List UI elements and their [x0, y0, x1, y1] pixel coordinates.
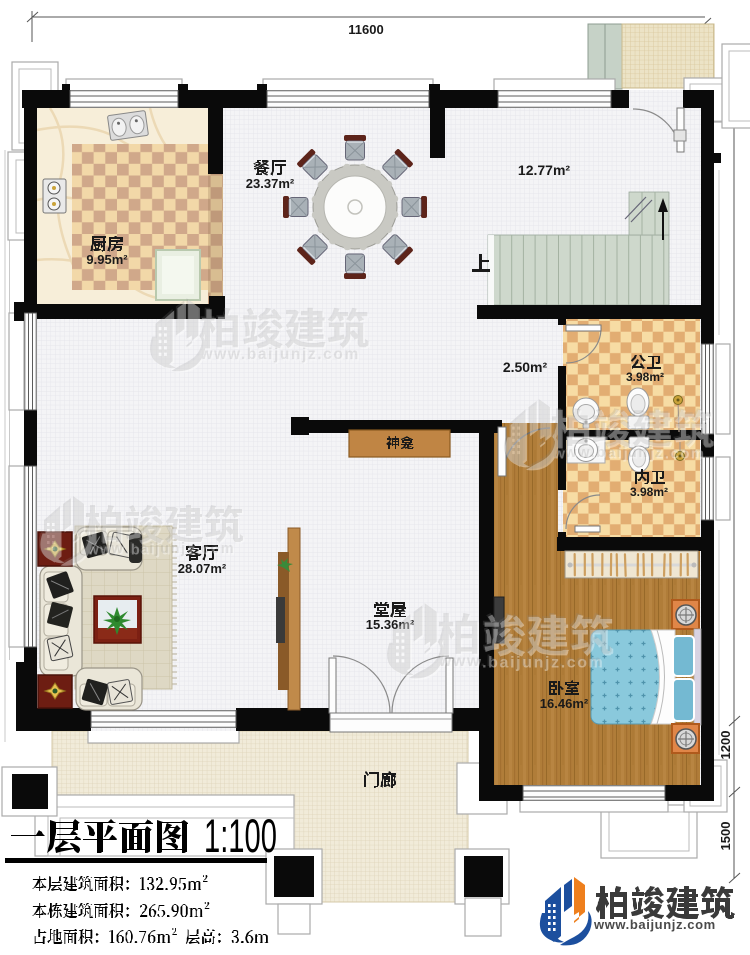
svg-text:16.46m²: 16.46m² [540, 696, 589, 711]
svg-text:1200: 1200 [718, 731, 733, 760]
svg-text:www.baijunjz.com: www.baijunjz.com [551, 445, 704, 461]
svg-text:2.50m²: 2.50m² [503, 359, 548, 375]
svg-text:www.baijunjz.com: www.baijunjz.com [199, 346, 359, 363]
svg-text:www.baijunjz.com: www.baijunjz.com [438, 653, 603, 670]
svg-text:3.98m²: 3.98m² [630, 485, 668, 499]
svg-text:1500: 1500 [718, 822, 733, 851]
svg-text:3.98m²: 3.98m² [626, 370, 664, 384]
svg-text:1:100: 1:100 [204, 811, 277, 863]
svg-text:23.37m²: 23.37m² [246, 176, 295, 191]
svg-text:11600: 11600 [348, 22, 383, 37]
svg-text:28.07m²: 28.07m² [178, 561, 227, 576]
svg-text:www.baijunjz.com: www.baijunjz.com [593, 917, 716, 932]
svg-text:www.baijunjz.com: www.baijunjz.com [85, 541, 235, 557]
svg-text:12.77m²: 12.77m² [518, 162, 570, 178]
svg-text:9.95m²: 9.95m² [86, 252, 128, 267]
